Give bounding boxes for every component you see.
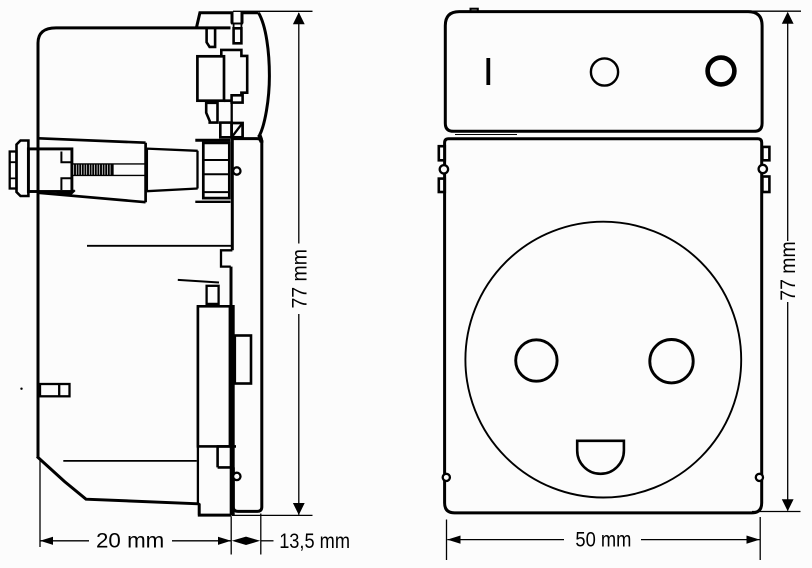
svg-text:13,5 mm: 13,5 mm [279, 530, 350, 553]
svg-text:77 mm: 77 mm [288, 249, 311, 309]
svg-text:50 mm: 50 mm [575, 529, 631, 552]
svg-text:20 mm: 20 mm [96, 530, 164, 553]
svg-text:77 mm: 77 mm [777, 241, 800, 301]
